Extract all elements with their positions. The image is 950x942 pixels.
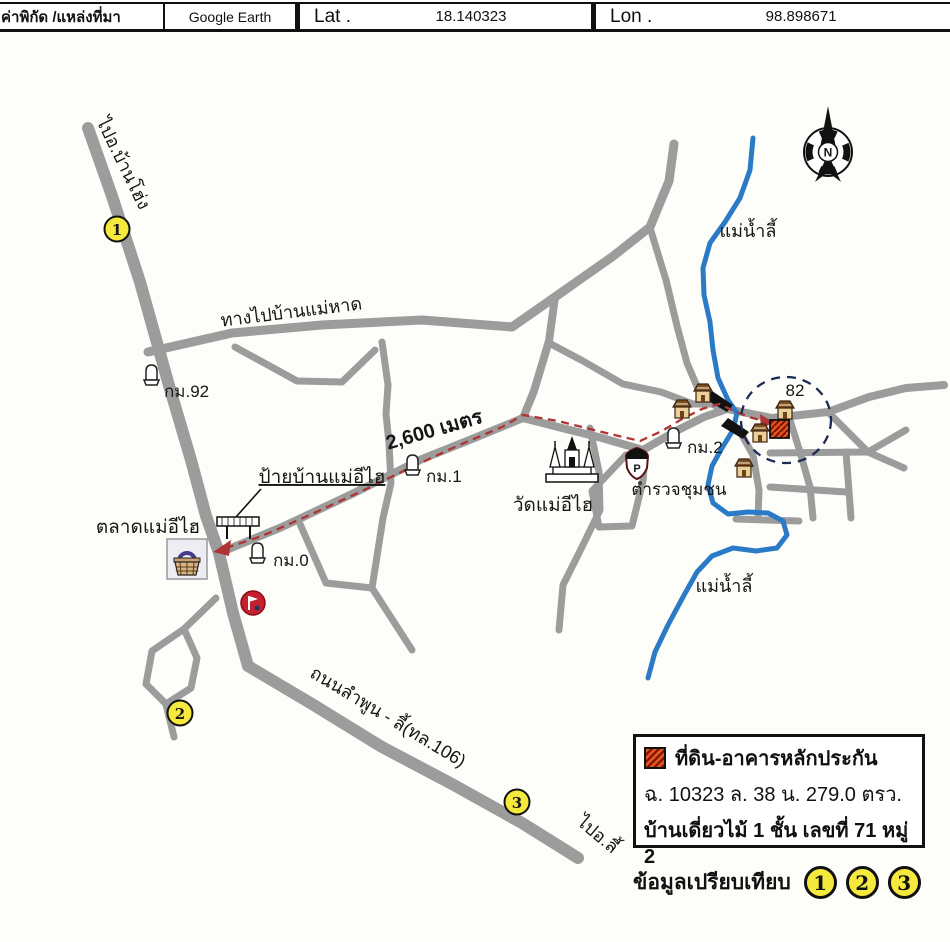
vertical-branch-mid (372, 342, 391, 588)
collateral-swatch-icon (644, 747, 666, 769)
branch-southeast-market (300, 524, 412, 650)
lat-value: 18.140323 (351, 8, 591, 25)
compass-rose-icon: N (804, 106, 852, 182)
comparison-marker-1: 1 (105, 217, 130, 242)
village-sign-icon (217, 489, 261, 539)
comparison-row: ข้อมูลเปรียบเทียบ 1 2 3 (633, 866, 921, 899)
label-km0: กม.0 (273, 551, 309, 570)
latitude-cell: Lat . 18.140323 (295, 4, 591, 29)
poi-icon (241, 591, 265, 615)
label-km1: กม.1 (426, 467, 462, 486)
km-post-icon-1 (405, 455, 420, 475)
km-post-icon-0 (250, 543, 265, 563)
km-post-icon-2 (666, 428, 681, 448)
comparison-badge-3: 3 (888, 866, 921, 899)
comparison-marker-2: 2 (168, 701, 193, 726)
label-km2: กม.2 (687, 438, 723, 457)
coord-source-label: ค่าพิกัด /แหล่งที่มา (0, 4, 163, 29)
road-temple-stretch (523, 418, 643, 450)
house-icon (735, 459, 753, 477)
km-post-icon-92 (144, 365, 159, 385)
street-grid-1 (790, 420, 813, 518)
comparison-marker-3: 3 (505, 790, 530, 815)
label-police: ตำรวจชุมชน (631, 480, 727, 500)
label-distance: 2,600 เมตร (384, 406, 486, 455)
police-badge-letter: P (633, 463, 640, 475)
lat-label: Lat . (300, 6, 351, 28)
label-river-south: แม่น้ำลี้ (696, 573, 754, 596)
comparison-label: ข้อมูลเปรียบเทียบ (633, 866, 791, 899)
road-north-branch (651, 231, 706, 402)
loop-branch-north (235, 347, 375, 382)
street-grid-4 (868, 430, 906, 452)
road-east-exit (828, 385, 944, 412)
house-icon (751, 424, 769, 442)
collateral-building (770, 420, 789, 438)
road-lamphun-li (248, 666, 578, 858)
legend-title: ที่ดิน-อาคารหลักประกัน (675, 742, 878, 774)
comparison-badge-2: 2 (846, 866, 879, 899)
comparison-badge-1: 1 (804, 866, 837, 899)
label-km92: กม.92 (164, 382, 209, 401)
house-icon (673, 400, 691, 418)
street-grid-2 (770, 452, 868, 453)
street-grid-8 (736, 519, 799, 521)
svg-text:3: 3 (512, 794, 522, 812)
label-house-no-82: 82 (786, 381, 805, 400)
label-river-north: แม่น้ำลี้ (720, 218, 778, 241)
legend-deed-info: ฉ. 10323 ล. 38 น. 279.0 ตรว. (644, 778, 914, 810)
house-icon (694, 384, 712, 402)
house-icon (776, 401, 794, 419)
street-grid-6 (846, 452, 851, 518)
label-to-li: ไปอ.ลี้ (572, 808, 625, 858)
market-basket-icon (167, 539, 207, 579)
coord-source-value: Google Earth (163, 4, 295, 29)
legend-box: ที่ดิน-อาคารหลักประกัน ฉ. 10323 ล. 38 น.… (633, 734, 925, 848)
coordinate-header: ค่าพิกัด /แหล่งที่มา Google Earth Lat . … (0, 2, 950, 32)
map-page: ค่าพิกัด /แหล่งที่มา Google Earth Lat . … (0, 0, 950, 942)
lon-value: 98.898671 (652, 8, 950, 25)
legend-building-info: บ้านเดี่ยวไม้ 1 ชั้น เลขที่ 71 หมู่ 2 (644, 814, 914, 869)
svg-text:1: 1 (112, 221, 122, 239)
label-temple: วัดแม่อีไฮ (513, 494, 593, 516)
label-village-sign: ป้ายบ้านแม่อีไฮ (259, 466, 386, 488)
lon-label: Lon . (596, 6, 652, 28)
compass-n-label: N (824, 146, 833, 160)
label-market: ตลาดแม่อีไฮ (96, 516, 200, 538)
longitude-cell: Lon . 98.898671 (591, 4, 950, 29)
svg-text:2: 2 (175, 705, 185, 723)
street-grid-5 (770, 487, 846, 492)
